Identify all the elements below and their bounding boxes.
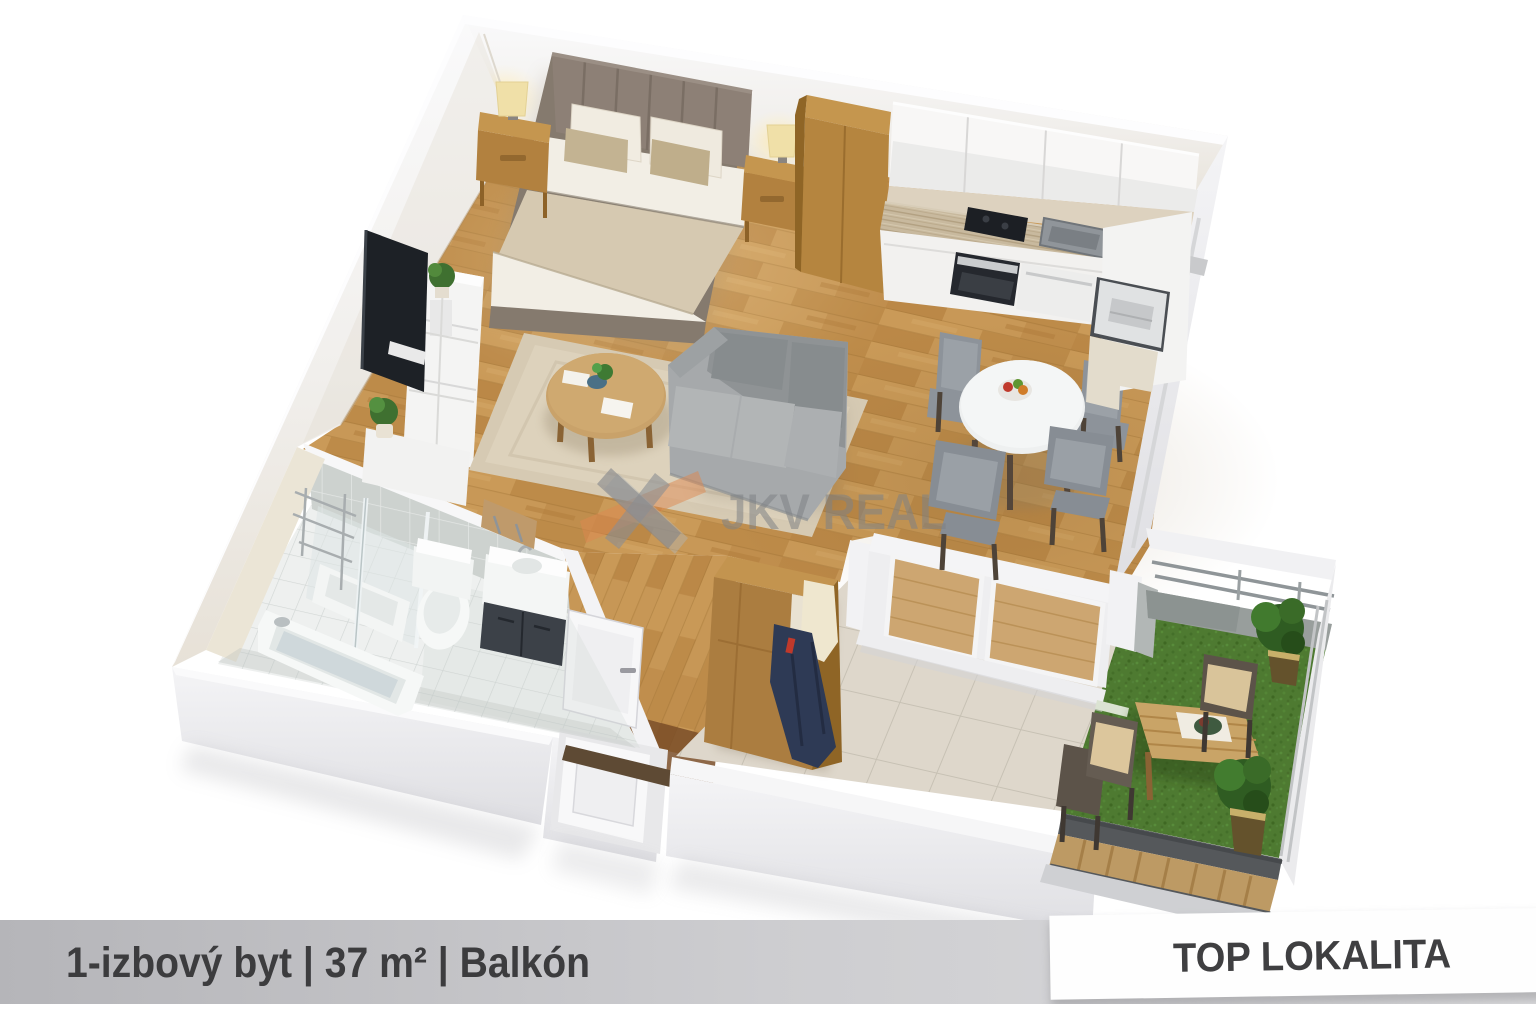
svg-text:JKV REAL: JKV REAL	[721, 484, 947, 540]
svg-text:1-izbový byt | 37 m² | Balkón: 1-izbový byt | 37 m² | Balkón	[66, 939, 590, 987]
svg-text:TOP LOKALITA: TOP LOKALITA	[1173, 930, 1452, 980]
